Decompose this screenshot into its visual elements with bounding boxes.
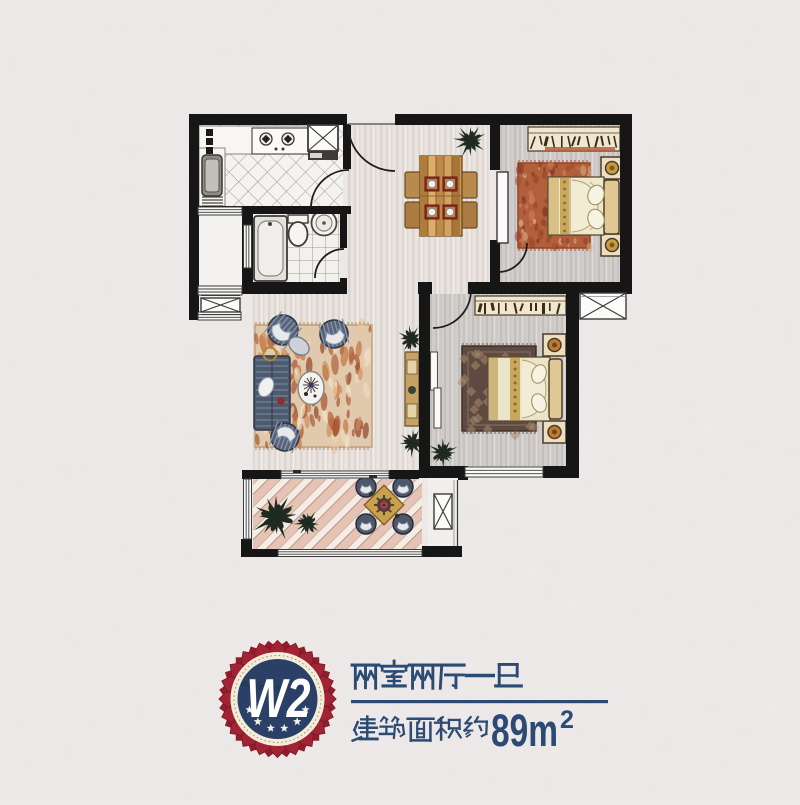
svg-text:2: 2 (560, 706, 574, 734)
svg-text:89m: 89m (491, 705, 558, 756)
svg-text:W2: W2 (247, 667, 311, 729)
